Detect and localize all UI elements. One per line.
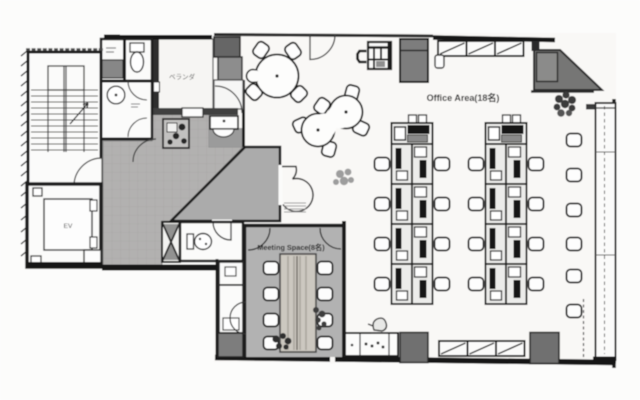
svg-text:Office Area(18名): Office Area(18名) [427,92,500,103]
svg-text:EV: EV [64,223,73,230]
svg-text:ベランダ: ベランダ [169,72,196,81]
svg-text:Meeting Space(8名): Meeting Space(8名) [257,243,325,252]
